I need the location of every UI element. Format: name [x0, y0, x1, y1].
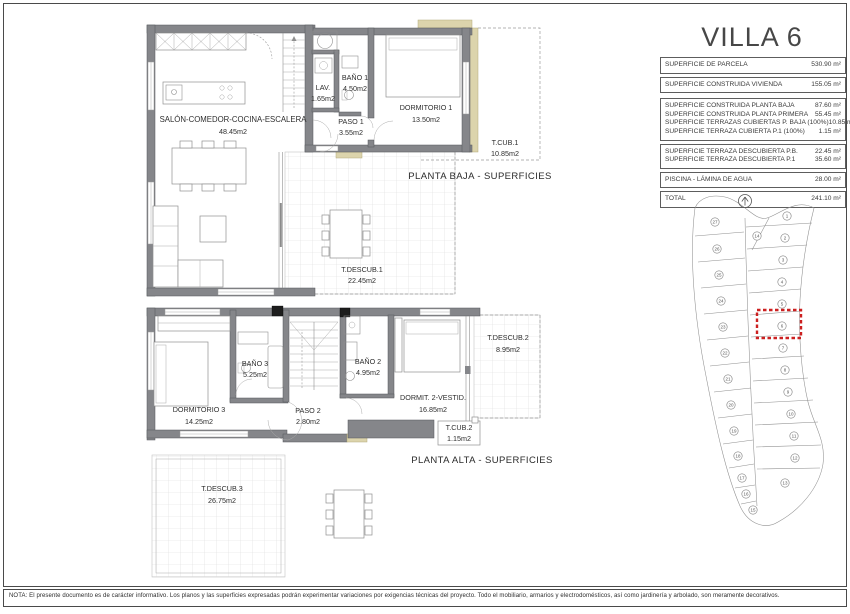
kitchen-cabinets [156, 33, 246, 50]
entry-door-arc [246, 33, 272, 59]
room-area-tcub1: 10.85m2 [491, 149, 519, 158]
bed-dormitorio3 [154, 342, 208, 406]
room-label-dormitorio1: DORMITORIO 1 [400, 103, 453, 112]
room-area-dormit2: 16.85m2 [419, 405, 447, 414]
room-area-dormitorio3: 14.25m2 [185, 417, 213, 426]
stairs-ground-floor [283, 33, 305, 112]
room-area-dormitorio1: 13.50m2 [412, 115, 440, 124]
room-area-tdescub3: 26.75m2 [208, 496, 236, 505]
closet-dorm2 [395, 318, 402, 372]
plot-number: 19 [731, 429, 737, 434]
room-area-tdescub1: 22.45m2 [348, 276, 376, 285]
plot-number: 22 [722, 351, 728, 356]
room-area-lav: 1.65m2 [311, 94, 335, 103]
terrace3-table [326, 490, 372, 538]
chimney-column [272, 306, 283, 316]
room-label-bano3: BAÑO 3 [242, 359, 268, 368]
room-label-tdescub2: T.DESCUB.2 [487, 333, 529, 342]
bed-dormitorio2 [404, 320, 460, 372]
plot-number: 25 [716, 273, 722, 278]
planta-baja-title: PLANTA BAJA - SUPERFICIES [408, 171, 551, 182]
plot-number: 26 [714, 247, 720, 252]
door-arc [346, 398, 362, 414]
wardrobe-dorm3 [158, 316, 230, 331]
room-area-bano1: 4.50m2 [343, 84, 367, 93]
room-label-tdescub1: T.DESCUB.1 [341, 265, 383, 274]
room-area-bano2: 4.95m2 [356, 368, 380, 377]
plot-number: 27 [712, 220, 718, 225]
planta-baja-plan: SALÓN-COMEDOR-COCINA-ESCALERA 48.45m2 LA… [147, 20, 552, 296]
planta-alta-title: PLANTA ALTA - SUPERFICIES [411, 455, 552, 466]
room-label-salon: SALÓN-COMEDOR-COCINA-ESCALERA [160, 115, 308, 124]
sliding-glass-door [279, 152, 283, 288]
room-label-paso2: PASO 2 [295, 406, 320, 415]
plot-number: 23 [720, 325, 726, 330]
kitchen-island [163, 82, 245, 104]
washing-machine [315, 58, 332, 73]
room-label-bano1: BAÑO 1 [342, 73, 368, 82]
plot-number: 14 [754, 234, 760, 239]
room-label-lav: LAV. [316, 83, 330, 92]
door-arc [374, 121, 393, 140]
stairs-upper-floor [290, 322, 338, 390]
room-label-paso1: PASO 1 [338, 117, 363, 126]
door-arc [313, 120, 331, 138]
plot-number: 16 [743, 492, 749, 497]
room-area-bano3: 5.25m2 [243, 370, 267, 379]
plot-number: 24 [718, 299, 724, 304]
plot-number: 11 [792, 434, 797, 439]
plot-number: 17 [739, 476, 745, 481]
planta-alta-plan: DORMITORIO 3 14.25m2 BAÑO 3 5.25m2 PASO … [147, 306, 553, 577]
plot-layout [692, 196, 823, 525]
dining-table [172, 141, 246, 191]
room-label-tdescub3: T.DESCUB.3 [201, 484, 243, 493]
door-arc [236, 379, 252, 395]
plot-number: 18 [735, 454, 741, 459]
footer-note: NOTA: El presente documento es de caráct… [3, 589, 847, 607]
north-arrow-icon [739, 195, 752, 208]
room-area-tcub2: 1.15m2 [447, 434, 471, 443]
room-label-dormitorio3: DORMITORIO 3 [173, 405, 226, 414]
room-label-bano2: BAÑO 2 [355, 357, 381, 366]
room-area-salon: 48.45m2 [219, 127, 247, 136]
plot-number: 20 [728, 403, 734, 408]
terrace1-table [322, 210, 370, 258]
window-wall-dorm2 [465, 316, 471, 422]
bed-dormitorio1 [386, 35, 460, 97]
plot-number: 13 [782, 481, 788, 486]
plot-number: 10 [788, 412, 794, 417]
site-plan: 1 2 3 4 5 6 7 8 9 10 11 12 13 14 27 26 2… [673, 188, 847, 588]
chimney-column [340, 308, 350, 317]
plot-number: 12 [792, 456, 798, 461]
coffee-table [200, 216, 226, 242]
plot-number: 15 [750, 508, 756, 513]
room-label-tcub1: T.CUB.1 [492, 138, 519, 147]
room-area-paso2: 2.80m2 [296, 417, 320, 426]
terrace-descub2 [474, 315, 540, 418]
room-area-paso1: 3.55m2 [339, 128, 363, 137]
plot-number: 21 [725, 377, 731, 382]
terrace-descub3 [152, 455, 285, 577]
room-label-tcub2: T.CUB.2 [446, 423, 473, 432]
room-label-dormit2: DORMIT. 2-VESTID. [400, 393, 466, 402]
room-area-tdescub2: 8.95m2 [496, 345, 520, 354]
beige-wall-band [469, 28, 478, 152]
